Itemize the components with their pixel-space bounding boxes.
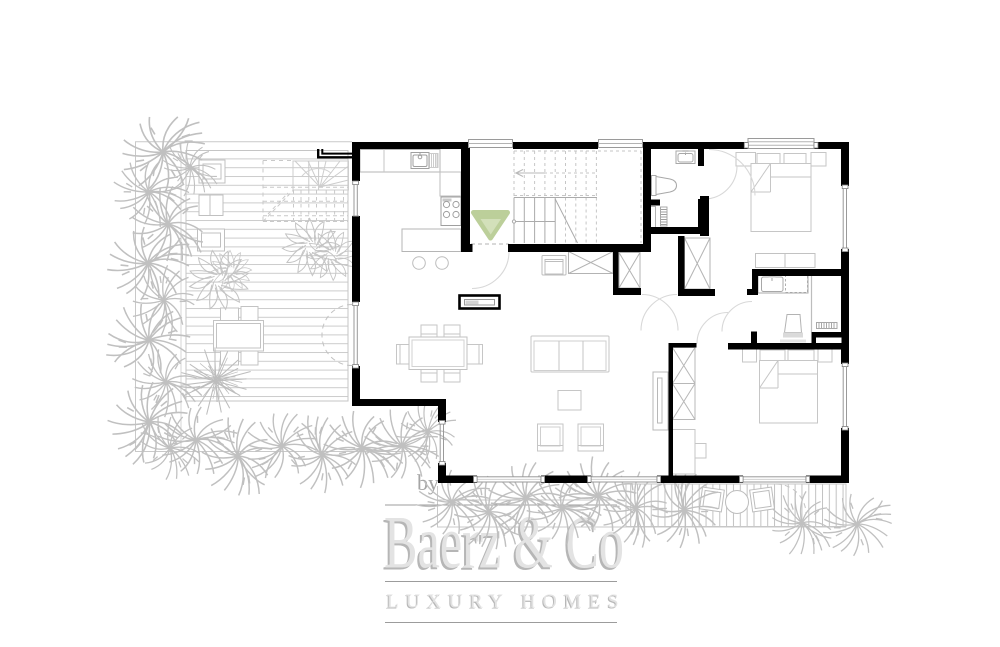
svg-text:LUXURY HOMES: LUXURY HOMES — [387, 591, 626, 613]
